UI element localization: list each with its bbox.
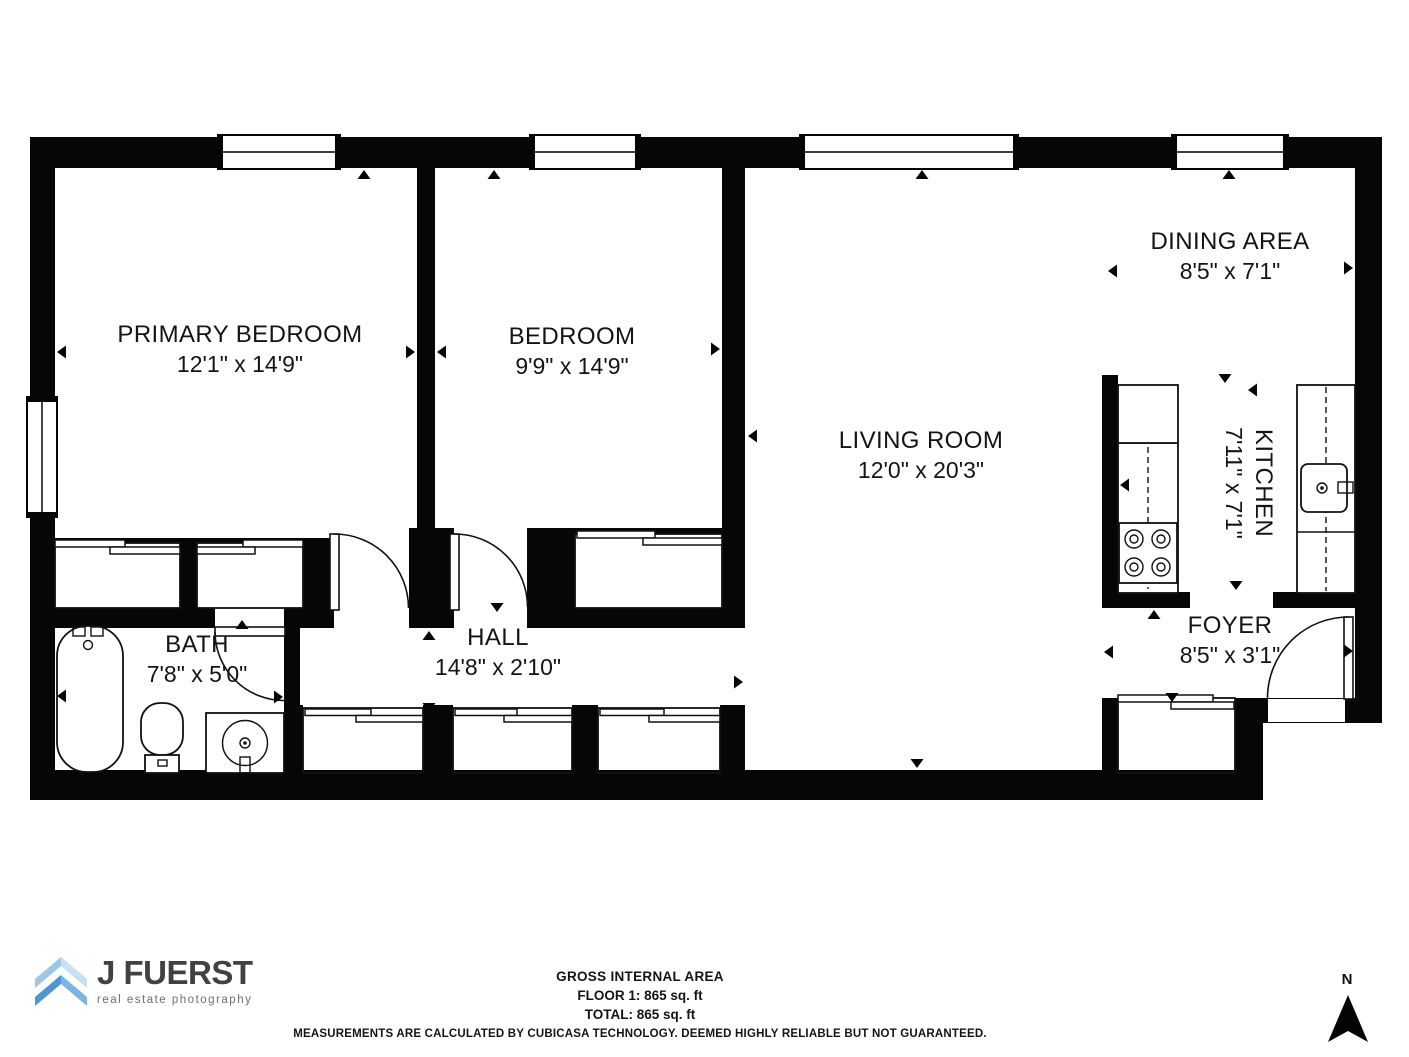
room-name: LIVING ROOM bbox=[839, 428, 1003, 454]
stove-icon bbox=[1119, 523, 1177, 583]
bedroom-door-icon bbox=[450, 534, 528, 610]
north-arrow-icon bbox=[1328, 995, 1368, 1042]
room-name: HALL bbox=[435, 625, 561, 651]
room-label-bath: BATH 7'8" x 5'0" bbox=[147, 632, 248, 688]
wall-bedroom-door-jamb bbox=[527, 528, 555, 628]
wall-kitchen-left bbox=[1102, 375, 1118, 593]
room-dimensions: 14'8" x 2'10" bbox=[435, 656, 561, 681]
room-label-kitchen: KITCHEN 7'11" x 7'1" bbox=[1220, 427, 1276, 539]
gross-internal-area-block: GROSS INTERNAL AREA FLOOR 1: 865 sq. ft … bbox=[0, 969, 1280, 1040]
window-primary-bedroom-left bbox=[27, 397, 57, 517]
bath-sink-icon bbox=[206, 713, 284, 773]
wall-hall-top-1 bbox=[30, 608, 215, 628]
wall-hall-closet-post-0 bbox=[288, 705, 303, 773]
bathtub-icon bbox=[57, 626, 123, 772]
wall-right bbox=[1355, 137, 1382, 723]
room-label-living-room: LIVING ROOM 12'0" x 20'3" bbox=[839, 428, 1003, 484]
room-dimensions: 7'11" x 7'1" bbox=[1220, 427, 1245, 539]
room-label-bedroom: BEDROOM 9'9" x 14'9" bbox=[509, 324, 636, 380]
room-dimensions: 8'5" x 3'1" bbox=[1180, 644, 1281, 669]
room-dimensions: 8'5" x 7'1" bbox=[1150, 260, 1309, 285]
room-dimensions: 7'8" x 5'0" bbox=[147, 663, 248, 688]
wall-bedroom-closet-left bbox=[555, 534, 575, 608]
room-name: BEDROOM bbox=[509, 324, 636, 350]
north-label: N bbox=[1335, 971, 1359, 988]
wall-hall-closet-post-3 bbox=[720, 705, 745, 773]
room-name: BATH bbox=[147, 632, 248, 658]
wall-kitchen-bottom-1 bbox=[1102, 592, 1190, 608]
wall-primary-closet-mid bbox=[180, 543, 197, 608]
floor-plan-page: PRIMARY BEDROOM 12'1" x 14'9" BEDROOM 9'… bbox=[0, 0, 1409, 1057]
area-title: GROSS INTERNAL AREA bbox=[0, 969, 1280, 984]
wall-foyer-closet-right bbox=[1235, 698, 1263, 800]
room-name: FOYER bbox=[1180, 613, 1281, 639]
wall-hall-top-3 bbox=[530, 608, 745, 628]
fridge-icon bbox=[1118, 385, 1178, 443]
wall-hall-closet-post-1 bbox=[423, 705, 453, 773]
window-dining-area bbox=[1172, 135, 1288, 169]
wall-kitchen-bottom-2 bbox=[1273, 592, 1357, 608]
room-name: KITCHEN bbox=[1249, 427, 1275, 539]
disclaimer: MEASUREMENTS ARE CALCULATED BY CUBICASA … bbox=[0, 1028, 1280, 1040]
room-name: DINING AREA bbox=[1150, 229, 1309, 255]
wall-bedroom-divider-base bbox=[409, 528, 454, 628]
wall-foyer-closet-left bbox=[1102, 698, 1118, 773]
floor-plan bbox=[0, 0, 1409, 1057]
floor-area-line: FLOOR 1: 865 sq. ft bbox=[0, 988, 1280, 1003]
room-label-dining-area: DINING AREA 8'5" x 7'1" bbox=[1150, 229, 1309, 285]
wall-hall-closet-post-2 bbox=[572, 705, 598, 773]
room-dimensions: 12'1" x 14'9" bbox=[117, 353, 362, 378]
total-area-line: TOTAL: 865 sq. ft bbox=[0, 1007, 1280, 1022]
room-label-hall: HALL 14'8" x 2'10" bbox=[435, 625, 561, 681]
room-label-foyer: FOYER 8'5" x 3'1" bbox=[1180, 613, 1281, 669]
window-primary-bedroom bbox=[218, 135, 340, 169]
room-dimensions: 12'0" x 20'3" bbox=[839, 459, 1003, 484]
front-door-opening bbox=[1268, 699, 1345, 722]
kitchen-sink-icon bbox=[1301, 464, 1353, 512]
wall-bottom bbox=[30, 770, 1263, 800]
primary-bedroom-door-icon bbox=[330, 534, 409, 610]
front-door-icon bbox=[1268, 617, 1354, 699]
room-dimensions: 9'9" x 14'9" bbox=[509, 355, 636, 380]
wall-bedroom-divider bbox=[417, 168, 435, 540]
room-name: PRIMARY BEDROOM bbox=[117, 322, 362, 348]
window-living-room bbox=[800, 135, 1018, 169]
wall-living-room-left bbox=[722, 168, 745, 628]
window-bedroom bbox=[530, 135, 640, 169]
room-label-primary-bedroom: PRIMARY BEDROOM 12'1" x 14'9" bbox=[117, 322, 362, 378]
toilet-icon bbox=[141, 703, 183, 773]
